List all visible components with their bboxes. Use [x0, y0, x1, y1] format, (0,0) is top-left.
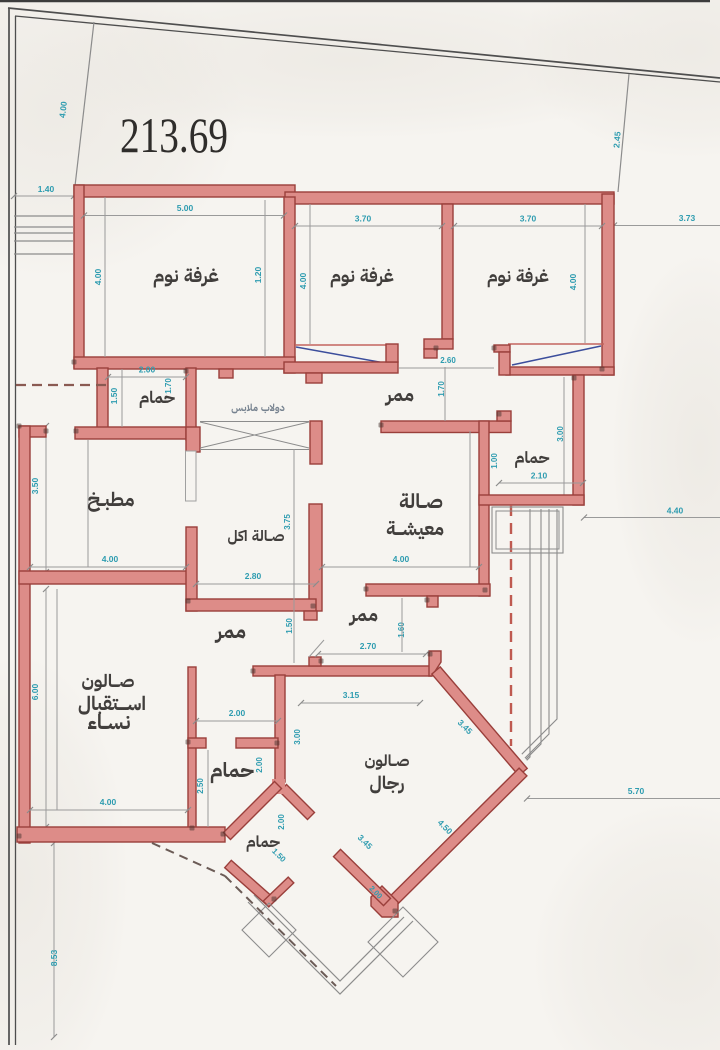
svg-text:2.00: 2.00	[139, 365, 156, 375]
svg-text:3.15: 3.15	[343, 690, 360, 700]
svg-text:6.00: 6.00	[30, 683, 40, 700]
svg-text:8.53: 8.53	[49, 949, 59, 966]
svg-text:1.20: 1.20	[253, 266, 263, 283]
svg-text:2.00: 2.00	[229, 708, 246, 718]
svg-text:3.75: 3.75	[283, 514, 292, 530]
svg-text:3.73: 3.73	[679, 213, 696, 223]
svg-text:3.70: 3.70	[520, 214, 537, 224]
svg-text:2.45: 2.45	[611, 131, 622, 149]
svg-text:4.00: 4.00	[298, 272, 308, 289]
svg-text:5.00: 5.00	[177, 203, 194, 213]
svg-text:2.50: 2.50	[196, 778, 205, 794]
svg-text:5.70: 5.70	[628, 786, 645, 796]
svg-text:3.70: 3.70	[355, 214, 372, 224]
svg-text:4.00: 4.00	[93, 268, 103, 285]
svg-text:2.10: 2.10	[531, 471, 548, 481]
svg-text:3.50: 3.50	[30, 477, 40, 494]
svg-text:1.00: 1.00	[490, 453, 499, 469]
svg-text:2.60: 2.60	[440, 356, 456, 365]
svg-text:1.40: 1.40	[38, 184, 55, 194]
svg-text:2.00: 2.00	[277, 814, 286, 830]
svg-text:1.50: 1.50	[285, 618, 294, 634]
svg-text:1.70: 1.70	[164, 378, 173, 394]
svg-text:2.00: 2.00	[255, 757, 264, 773]
svg-text:4.00: 4.00	[393, 554, 410, 564]
svg-text:1.50: 1.50	[109, 387, 119, 404]
svg-text:4.00: 4.00	[102, 554, 119, 564]
svg-text:3.00: 3.00	[556, 426, 565, 442]
svg-text:4.00: 4.00	[100, 797, 117, 807]
svg-text:2.80: 2.80	[245, 571, 262, 581]
svg-text:4.40: 4.40	[667, 506, 684, 516]
svg-text:4.00: 4.00	[568, 273, 578, 290]
svg-text:2.70: 2.70	[360, 641, 377, 651]
svg-text:4.00: 4.00	[57, 101, 69, 119]
svg-text:3.00: 3.00	[293, 729, 302, 745]
svg-text:213.69: 213.69	[120, 107, 228, 163]
